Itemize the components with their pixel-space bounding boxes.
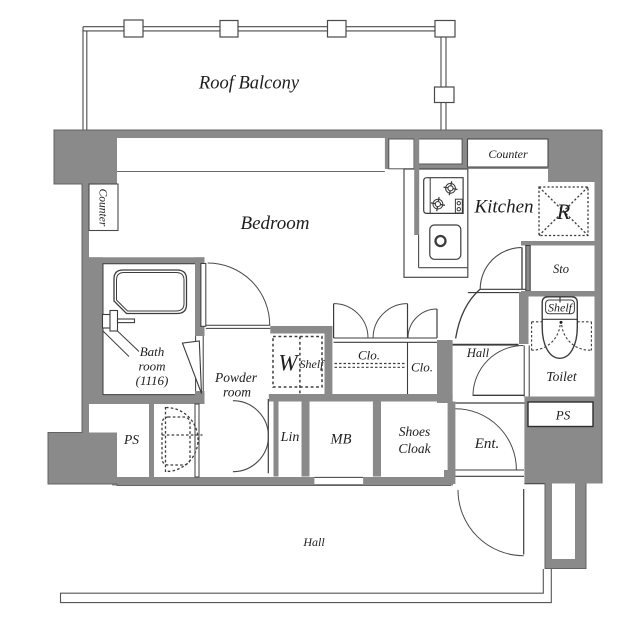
svg-text:Powder: Powder — [214, 370, 258, 385]
svg-text:Ent.: Ent. — [474, 436, 500, 452]
svg-text:Sto: Sto — [553, 262, 569, 276]
svg-text:room: room — [223, 385, 251, 400]
svg-text:Toilet: Toilet — [546, 369, 578, 384]
svg-text:Kitchen: Kitchen — [473, 197, 533, 218]
svg-text:R: R — [556, 199, 571, 224]
svg-text:Shelf: Shelf — [300, 357, 326, 371]
svg-text:Hall: Hall — [302, 535, 325, 549]
svg-text:Bedroom: Bedroom — [241, 213, 310, 234]
svg-text:Roof Balcony: Roof Balcony — [198, 74, 300, 94]
svg-text:Counter: Counter — [488, 147, 528, 161]
svg-text:(1116): (1116) — [136, 373, 169, 388]
svg-text:Counter: Counter — [97, 189, 109, 227]
svg-text:Shelf: Shelf — [548, 301, 574, 315]
svg-text:MB: MB — [330, 432, 352, 448]
svg-text:Clo.: Clo. — [358, 348, 380, 363]
svg-text:PS: PS — [123, 432, 139, 447]
svg-text:room: room — [139, 359, 166, 374]
svg-text:Lin: Lin — [280, 430, 300, 445]
svg-text:PS: PS — [555, 408, 571, 423]
svg-text:Hall: Hall — [466, 346, 490, 360]
svg-text:Shoes: Shoes — [399, 424, 431, 439]
svg-text:Cloak: Cloak — [398, 441, 431, 456]
svg-text:W: W — [278, 351, 299, 376]
svg-text:Clo.: Clo. — [411, 360, 433, 375]
svg-text:Bath: Bath — [140, 344, 165, 359]
